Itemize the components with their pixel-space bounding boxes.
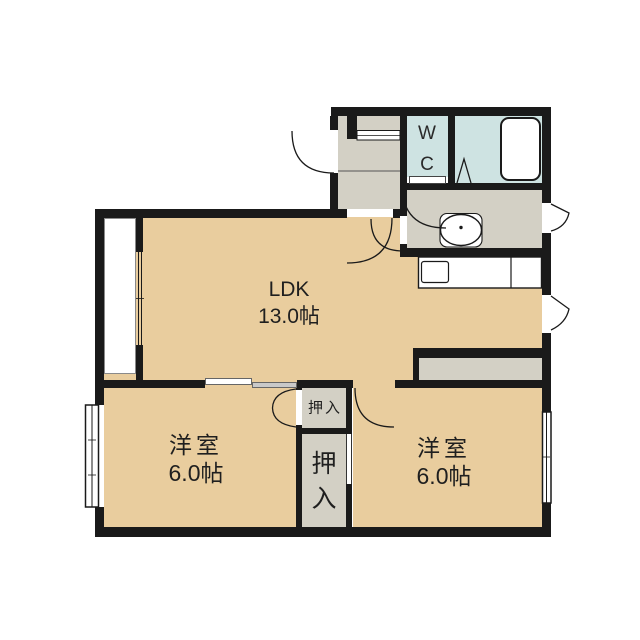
closet-upper-label: 押入 bbox=[308, 397, 342, 418]
wc-door-swing bbox=[402, 184, 446, 228]
bedroom-right-area: 6.0帖 bbox=[417, 462, 472, 490]
shoe-cabinet bbox=[357, 131, 400, 141]
faucet-dot bbox=[459, 226, 462, 229]
bedroom-right-name: 洋室 bbox=[417, 434, 472, 462]
bathtub bbox=[501, 118, 540, 180]
wc-label: W C bbox=[418, 118, 436, 180]
back-door-swing bbox=[551, 204, 569, 231]
kitchen-counter bbox=[419, 257, 542, 288]
bedroom-right-door-swing bbox=[355, 388, 394, 427]
wc-line1: W bbox=[418, 118, 436, 149]
entry-door-swing bbox=[292, 131, 334, 173]
bedroom-left-name: 洋室 bbox=[169, 431, 224, 459]
kitchen-sink bbox=[422, 262, 449, 283]
window-left-bedroom bbox=[86, 405, 99, 507]
floorplan: LDK 13.0帖 洋室 6.0帖 洋室 6.0帖 W C 押入 押 入 bbox=[0, 0, 640, 640]
fixtures-overlay bbox=[0, 0, 640, 640]
bedroom-left-area: 6.0帖 bbox=[169, 459, 224, 487]
washroom-door-swing bbox=[371, 219, 403, 251]
window-balcony bbox=[136, 252, 144, 345]
closet-lower-label: 押 入 bbox=[311, 447, 336, 517]
side-door-swing bbox=[551, 296, 569, 330]
vanity-sink bbox=[440, 214, 482, 248]
closet-lower-char1: 押 bbox=[311, 447, 336, 482]
closet-lower-char2: 入 bbox=[311, 482, 336, 517]
window-right-bedroom bbox=[543, 412, 552, 503]
ldk-area: 13.0帖 bbox=[258, 303, 320, 330]
closet-bifold-door bbox=[273, 389, 297, 427]
ldk-name: LDK bbox=[258, 276, 320, 303]
ldk-label: LDK 13.0帖 bbox=[258, 276, 320, 330]
entry-to-ldk-door-swing bbox=[347, 218, 392, 263]
bedroom-right-label: 洋室 6.0帖 bbox=[417, 434, 472, 490]
bedroom-left-label: 洋室 6.0帖 bbox=[169, 431, 224, 487]
wc-line2: C bbox=[418, 149, 436, 180]
bath-folding-door bbox=[457, 159, 471, 183]
